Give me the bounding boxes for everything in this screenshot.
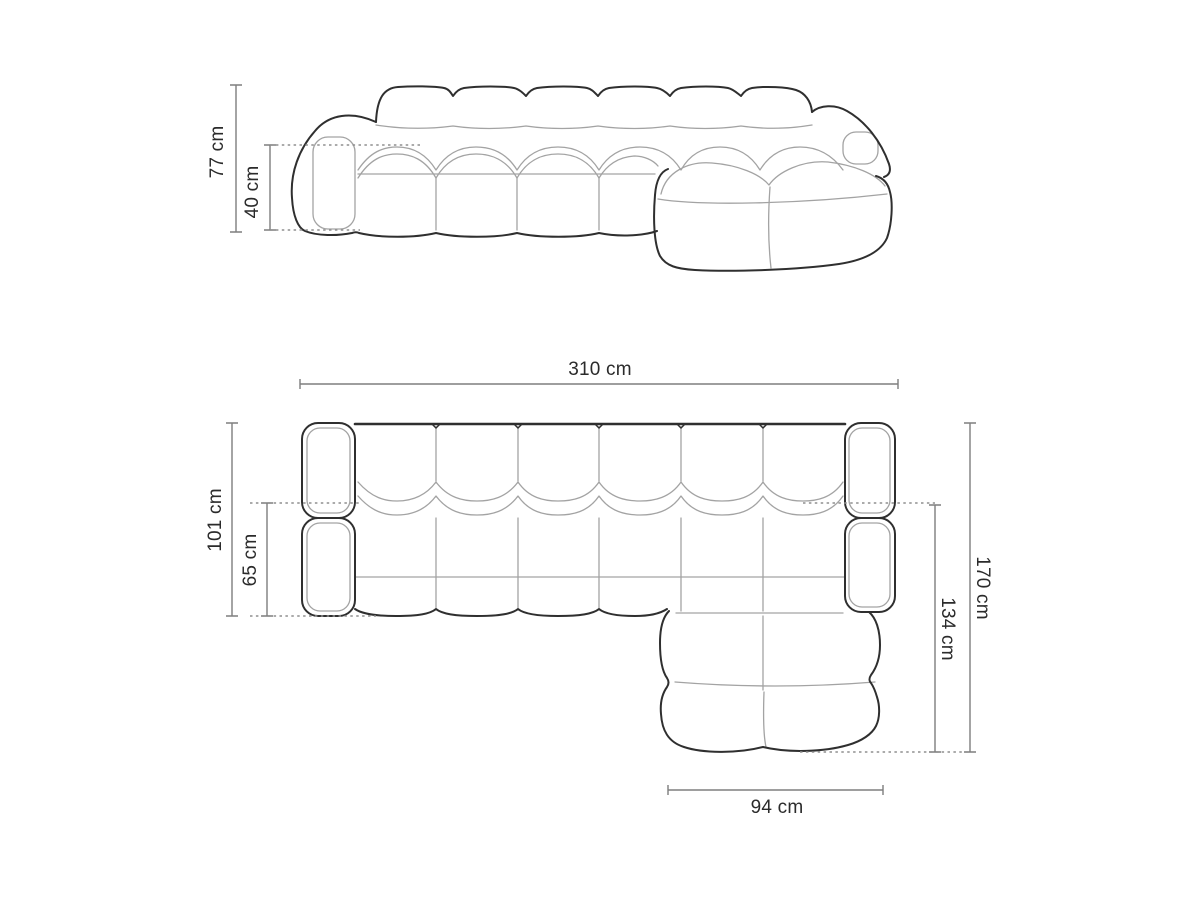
front-view-outline — [292, 86, 892, 270]
dim-label-top-chaise-depth: 134 cm — [936, 597, 958, 661]
top-view-seams — [307, 427, 890, 747]
diagram-linework — [0, 0, 1200, 901]
dim-line-front-total-height — [230, 85, 242, 232]
dim-label-top-total-depth-with-chaise: 170 cm — [971, 556, 993, 620]
front-view-seams — [313, 125, 887, 268]
top-view-drawing — [302, 423, 895, 752]
dim-label-front-seat-height: 40 cm — [242, 166, 264, 219]
dim-label-front-total-height: 77 cm — [207, 126, 229, 179]
front-view-drawing — [292, 86, 892, 270]
sofa-dimension-diagram: 77 cm 40 cm 310 cm 101 cm 65 cm 170 cm 1… — [0, 0, 1200, 901]
dimension-lines — [226, 85, 976, 795]
dim-line-top-seat-depth — [250, 503, 376, 616]
dim-label-top-chaise-width: 94 cm — [751, 797, 804, 819]
dim-label-top-total-width: 310 cm — [568, 359, 632, 381]
dim-line-top-body-depth — [226, 423, 238, 616]
dim-line-front-seat-height — [264, 145, 420, 230]
dim-label-top-seat-depth: 65 cm — [240, 534, 262, 587]
dim-label-top-body-depth: 101 cm — [205, 488, 227, 552]
dim-line-top-chaise-width — [668, 785, 883, 795]
